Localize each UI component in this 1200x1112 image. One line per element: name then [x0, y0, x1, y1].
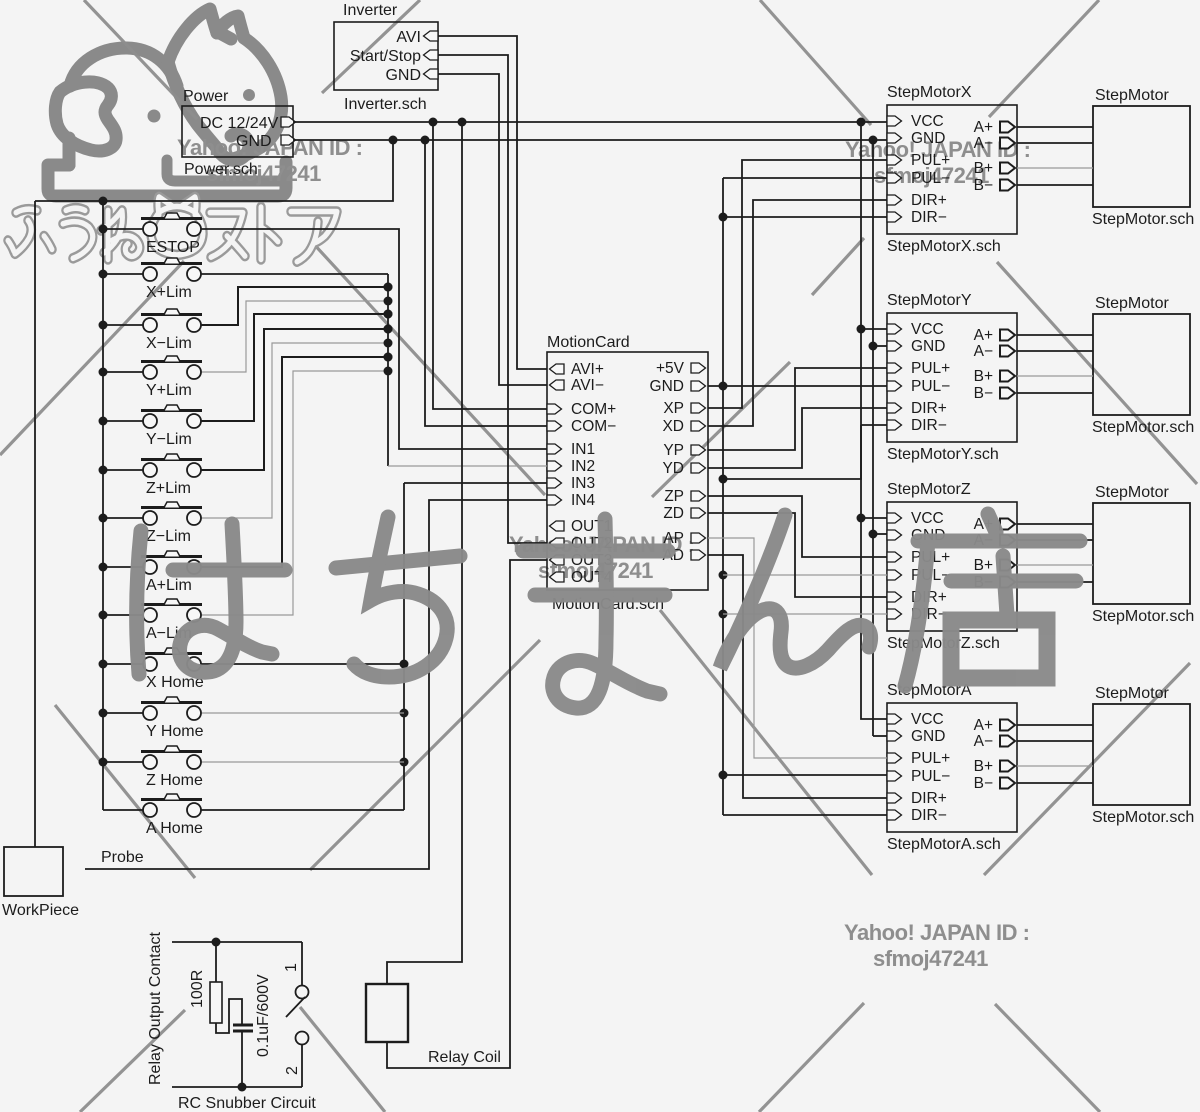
svg-text:StepMotor: StepMotor — [1095, 87, 1169, 104]
svg-text:StepMotor.sch: StepMotor.sch — [1092, 608, 1194, 625]
svg-text:StepMotorX: StepMotorX — [887, 84, 972, 101]
svg-text:VCC: VCC — [911, 321, 944, 338]
svg-text:WorkPiece: WorkPiece — [2, 902, 79, 919]
svg-text:Inverter.sch: Inverter.sch — [344, 96, 427, 113]
svg-text:Relay Output Contact: Relay Output Contact — [147, 931, 164, 1085]
svg-text:IN2: IN2 — [571, 458, 595, 475]
svg-text:StepMotor.sch: StepMotor.sch — [1092, 809, 1194, 826]
svg-text:VCC: VCC — [911, 711, 944, 728]
svg-text:DIR−: DIR− — [911, 209, 947, 226]
svg-text:+5V: +5V — [656, 360, 685, 377]
svg-text:StepMotor: StepMotor — [1095, 484, 1169, 501]
svg-text:StepMotor: StepMotor — [1095, 295, 1169, 312]
svg-text:Z+Lim: Z+Lim — [146, 480, 191, 497]
svg-text:ZP: ZP — [664, 488, 684, 505]
svg-text:DC 12/24V: DC 12/24V — [200, 115, 279, 132]
svg-text:AVI: AVI — [396, 29, 421, 46]
svg-text:PUL+: PUL+ — [911, 360, 950, 377]
svg-text:AVI−: AVI− — [571, 377, 604, 394]
svg-text:GND: GND — [236, 133, 272, 150]
svg-text:PUL+: PUL+ — [911, 750, 950, 767]
svg-text:DIR+: DIR+ — [911, 790, 947, 807]
svg-text:B+: B+ — [974, 368, 993, 385]
svg-text:GND: GND — [385, 67, 421, 84]
svg-text:GND: GND — [911, 728, 945, 745]
svg-text:Z−Lim: Z−Lim — [146, 528, 191, 545]
svg-text:B+: B+ — [974, 160, 993, 177]
svg-text:Y−Lim: Y−Lim — [146, 431, 192, 448]
svg-text:PUL+: PUL+ — [911, 152, 950, 169]
svg-text:ESTOP: ESTOP — [146, 239, 200, 256]
svg-text:Start/Stop: Start/Stop — [350, 48, 421, 65]
svg-text:B−: B− — [974, 775, 993, 792]
svg-text:StepMotor.sch: StepMotor.sch — [1092, 419, 1194, 436]
svg-text:Power.sch: Power.sch — [184, 161, 258, 178]
svg-text:A+: A+ — [974, 717, 993, 734]
svg-text:A−: A− — [974, 733, 993, 750]
svg-text:VCC: VCC — [911, 113, 944, 130]
svg-text:GND: GND — [911, 338, 945, 355]
svg-text:0.1uF/600V: 0.1uF/600V — [255, 974, 272, 1057]
svg-text:DIR−: DIR− — [911, 807, 947, 824]
svg-text:A−: A− — [974, 135, 993, 152]
svg-text:StepMotorY.sch: StepMotorY.sch — [887, 446, 999, 463]
svg-text:StepMotorZ: StepMotorZ — [887, 481, 971, 498]
svg-text:Inverter: Inverter — [343, 2, 398, 19]
svg-text:PUL−: PUL− — [911, 378, 950, 395]
svg-text:StepMotorY: StepMotorY — [887, 292, 972, 309]
svg-text:X−Lim: X−Lim — [146, 335, 192, 352]
svg-text:YD: YD — [662, 460, 684, 477]
svg-text:B−: B− — [974, 177, 993, 194]
svg-text:B+: B+ — [974, 758, 993, 775]
svg-text:Y Home: Y Home — [146, 723, 204, 740]
svg-text:PUL−: PUL− — [911, 170, 950, 187]
svg-text:IN4: IN4 — [571, 492, 596, 509]
svg-text:A+: A+ — [974, 327, 993, 344]
svg-text:A−: A− — [974, 343, 993, 360]
svg-text:StepMotorA.sch: StepMotorA.sch — [887, 836, 1001, 853]
svg-text:Y+Lim: Y+Lim — [146, 382, 192, 399]
svg-text:GND: GND — [911, 130, 945, 147]
svg-text:StepMotor: StepMotor — [1095, 685, 1169, 702]
svg-text:VCC: VCC — [911, 510, 944, 527]
svg-text:StepMotor.sch: StepMotor.sch — [1092, 211, 1194, 228]
svg-text:YP: YP — [663, 442, 684, 459]
svg-text:XP: XP — [663, 400, 684, 417]
svg-text:DIR+: DIR+ — [911, 400, 947, 417]
svg-text:IN1: IN1 — [571, 441, 595, 458]
svg-text:X+Lim: X+Lim — [146, 284, 192, 301]
svg-text:Probe: Probe — [101, 849, 144, 866]
svg-text:2: 2 — [284, 1066, 301, 1075]
svg-text:COM−: COM− — [571, 418, 616, 435]
svg-text:Power: Power — [183, 88, 229, 105]
svg-text:DIR+: DIR+ — [911, 192, 947, 209]
svg-text:DIR−: DIR− — [911, 417, 947, 434]
svg-text:sfmoj47241: sfmoj47241 — [873, 946, 988, 971]
svg-text:MotionCard: MotionCard — [547, 334, 630, 351]
svg-text:AVI+: AVI+ — [571, 361, 604, 378]
svg-text:A+Lim: A+Lim — [146, 577, 192, 594]
svg-text:RC Snubber Circuit: RC Snubber Circuit — [178, 1095, 316, 1112]
svg-text:IN3: IN3 — [571, 475, 595, 492]
svg-text:PUL−: PUL− — [911, 768, 950, 785]
svg-text:ZD: ZD — [663, 505, 684, 522]
svg-text:COM+: COM+ — [571, 401, 616, 418]
svg-text:GND: GND — [650, 378, 684, 395]
svg-text:Relay Coil: Relay Coil — [428, 1049, 501, 1066]
svg-text:A+: A+ — [974, 119, 993, 136]
svg-text:100R: 100R — [189, 970, 206, 1008]
svg-text:A Home: A Home — [146, 820, 203, 837]
svg-text:Z Home: Z Home — [146, 772, 203, 789]
svg-text:B−: B− — [974, 385, 993, 402]
svg-text:1: 1 — [283, 963, 300, 972]
svg-text:B+: B+ — [974, 557, 993, 574]
svg-text:XD: XD — [662, 418, 684, 435]
svg-text:StepMotorX.sch: StepMotorX.sch — [887, 238, 1001, 255]
svg-text:Yahoo! JAPAN ID :: Yahoo! JAPAN ID : — [844, 920, 1029, 945]
